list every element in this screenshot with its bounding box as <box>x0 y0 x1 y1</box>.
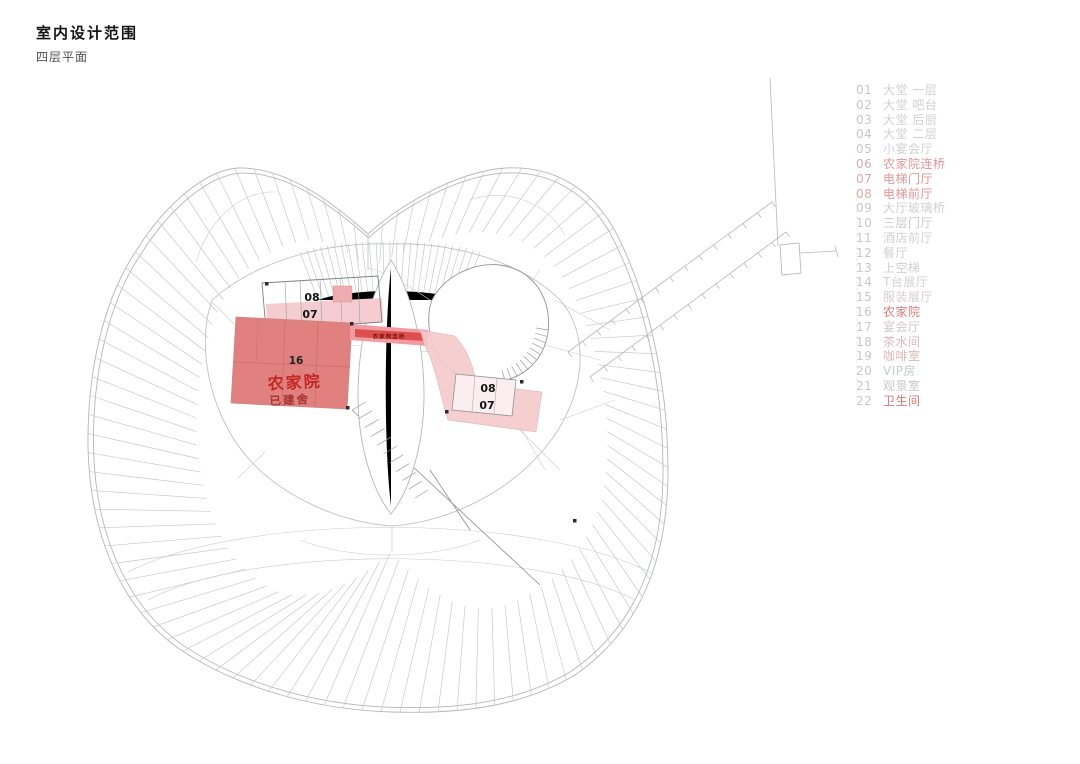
site-small-rect <box>780 243 801 275</box>
legend-item: 19咖啡室 <box>856 349 946 364</box>
label-bridge: 农家院连桥 <box>372 333 406 341</box>
legend-item: 18茶水间 <box>856 335 946 350</box>
label-elev-mid-08: 08 <box>480 382 495 395</box>
legend-item: 22卫生间 <box>856 394 946 409</box>
legend-item: 16农家院 <box>856 305 946 320</box>
floor-plan-page: 08 07 16 农家院 已建舍 农家院连桥 08 07 <box>0 0 1080 764</box>
label-block-16: 16 <box>289 355 304 367</box>
legend-item: 04大堂 二层 <box>856 127 946 142</box>
legend-item: 17宴会厅 <box>856 320 946 335</box>
small-pink-room <box>333 286 352 302</box>
legend-item: 05小宴会厅 <box>856 142 946 157</box>
label-elev-top-08: 08 <box>304 291 319 304</box>
page-title: 室内设计范围 <box>36 22 138 43</box>
label-farmhouse-sub: 已建舍 <box>269 392 310 408</box>
legend-item: 08电梯前厅 <box>856 187 946 202</box>
legend-item: 21观景室 <box>856 379 946 394</box>
label-farmhouse-name: 农家院 <box>266 372 322 394</box>
legend-item: 12餐厅 <box>856 246 946 261</box>
legend-item: 09大厅玻璃桥 <box>856 201 946 216</box>
label-elev-top-07: 07 <box>302 308 317 321</box>
walkway-ticks-lower <box>590 232 790 382</box>
site-lines <box>770 78 857 398</box>
legend-item: 20VIP房 <box>856 364 946 379</box>
legend-item: 14T台展厅 <box>856 275 946 290</box>
legend-item: 03大堂 后厨 <box>856 113 946 128</box>
legend-item: 07电梯门厅 <box>856 172 946 187</box>
legend: 01大堂 一层 02大堂 吧台 03大堂 后厨 04大堂 二层 05小宴会厅 0… <box>856 83 946 409</box>
legend-item: 06农家院连桥 <box>856 157 946 172</box>
page-subtitle: 四层平面 <box>36 48 88 65</box>
label-elev-mid-07: 07 <box>479 399 494 412</box>
legend-item: 11酒店前厅 <box>856 231 946 246</box>
walkway-ticks-upper <box>568 202 776 357</box>
legend-item: 02大堂 吧台 <box>856 98 946 113</box>
legend-item: 13上空梯 <box>856 261 946 276</box>
legend-item: 10三层门厅 <box>856 216 946 231</box>
legend-item: 01大堂 一层 <box>856 83 946 98</box>
legend-item: 15服装展厅 <box>856 290 946 305</box>
farmhouse-block: 16 农家院 已建舍 <box>231 317 352 409</box>
